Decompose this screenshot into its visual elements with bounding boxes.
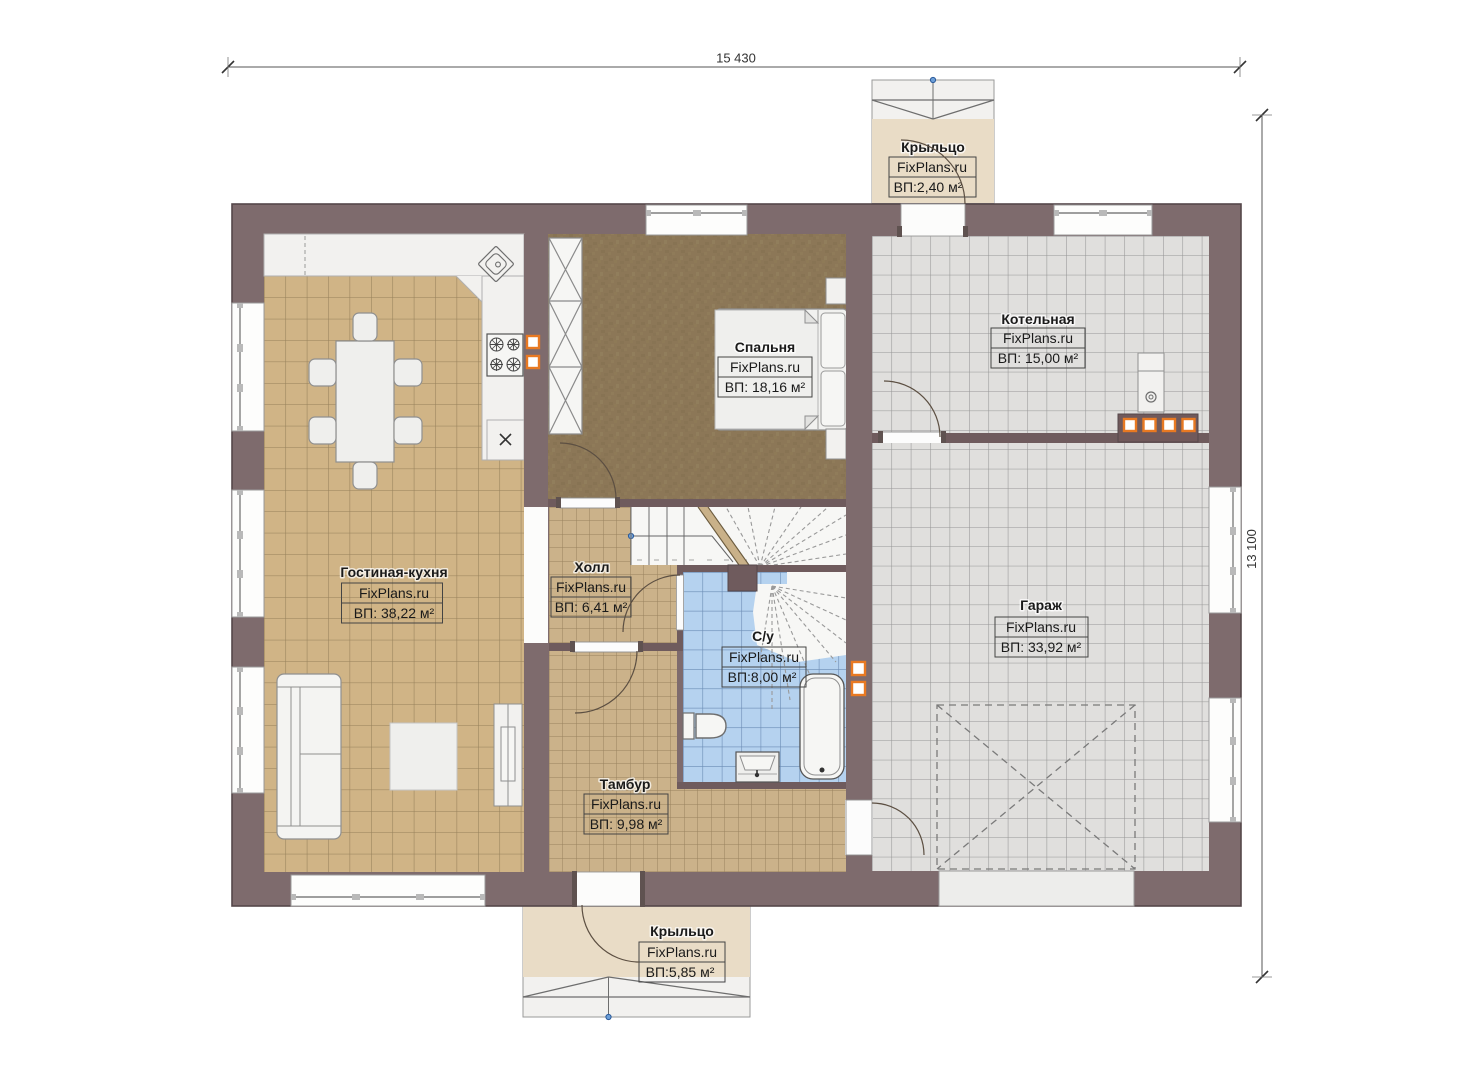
svg-text:ВП: 38,22 м²: ВП: 38,22 м²	[354, 605, 435, 621]
svg-text:Котельная: Котельная	[1001, 311, 1074, 327]
svg-text:ВП: 9,98 м²: ВП: 9,98 м²	[590, 816, 663, 832]
svg-text:FixPlans.ru: FixPlans.ru	[647, 944, 717, 960]
svg-text:FixPlans.ru: FixPlans.ru	[1003, 330, 1073, 346]
svg-text:ВП: 6,41 м²: ВП: 6,41 м²	[555, 599, 628, 615]
svg-text:ВП: 15,00 м²: ВП: 15,00 м²	[998, 350, 1079, 366]
svg-text:Крыльцо: Крыльцо	[901, 139, 965, 155]
svg-text:Тамбур: Тамбур	[600, 776, 651, 792]
svg-text:Спальня: Спальня	[735, 339, 795, 355]
svg-text:Гараж: Гараж	[1020, 597, 1063, 613]
svg-text:FixPlans.ru: FixPlans.ru	[730, 359, 800, 375]
svg-text:ВП: 33,92 м²: ВП: 33,92 м²	[1001, 639, 1082, 655]
svg-text:Гостиная-кухня: Гостиная-кухня	[340, 564, 447, 580]
svg-text:ВП: 18,16 м²: ВП: 18,16 м²	[725, 379, 806, 395]
svg-text:ВП:2,40 м²: ВП:2,40 м²	[894, 179, 963, 195]
svg-text:FixPlans.ru: FixPlans.ru	[359, 585, 429, 601]
svg-text:ВП:5,85 м²: ВП:5,85 м²	[646, 964, 715, 980]
svg-text:С/у: С/у	[752, 628, 774, 644]
svg-text:15 430: 15 430	[716, 51, 756, 66]
svg-text:ВП:8,00 м²: ВП:8,00 м²	[728, 669, 797, 685]
svg-text:FixPlans.ru: FixPlans.ru	[729, 649, 799, 665]
svg-text:FixPlans.ru: FixPlans.ru	[591, 796, 661, 812]
svg-text:FixPlans.ru: FixPlans.ru	[1006, 619, 1076, 635]
svg-text:Холл: Холл	[574, 559, 609, 575]
svg-text:FixPlans.ru: FixPlans.ru	[556, 579, 626, 595]
svg-text:Крыльцо: Крыльцо	[650, 923, 714, 939]
svg-text:13 100: 13 100	[1244, 529, 1259, 569]
